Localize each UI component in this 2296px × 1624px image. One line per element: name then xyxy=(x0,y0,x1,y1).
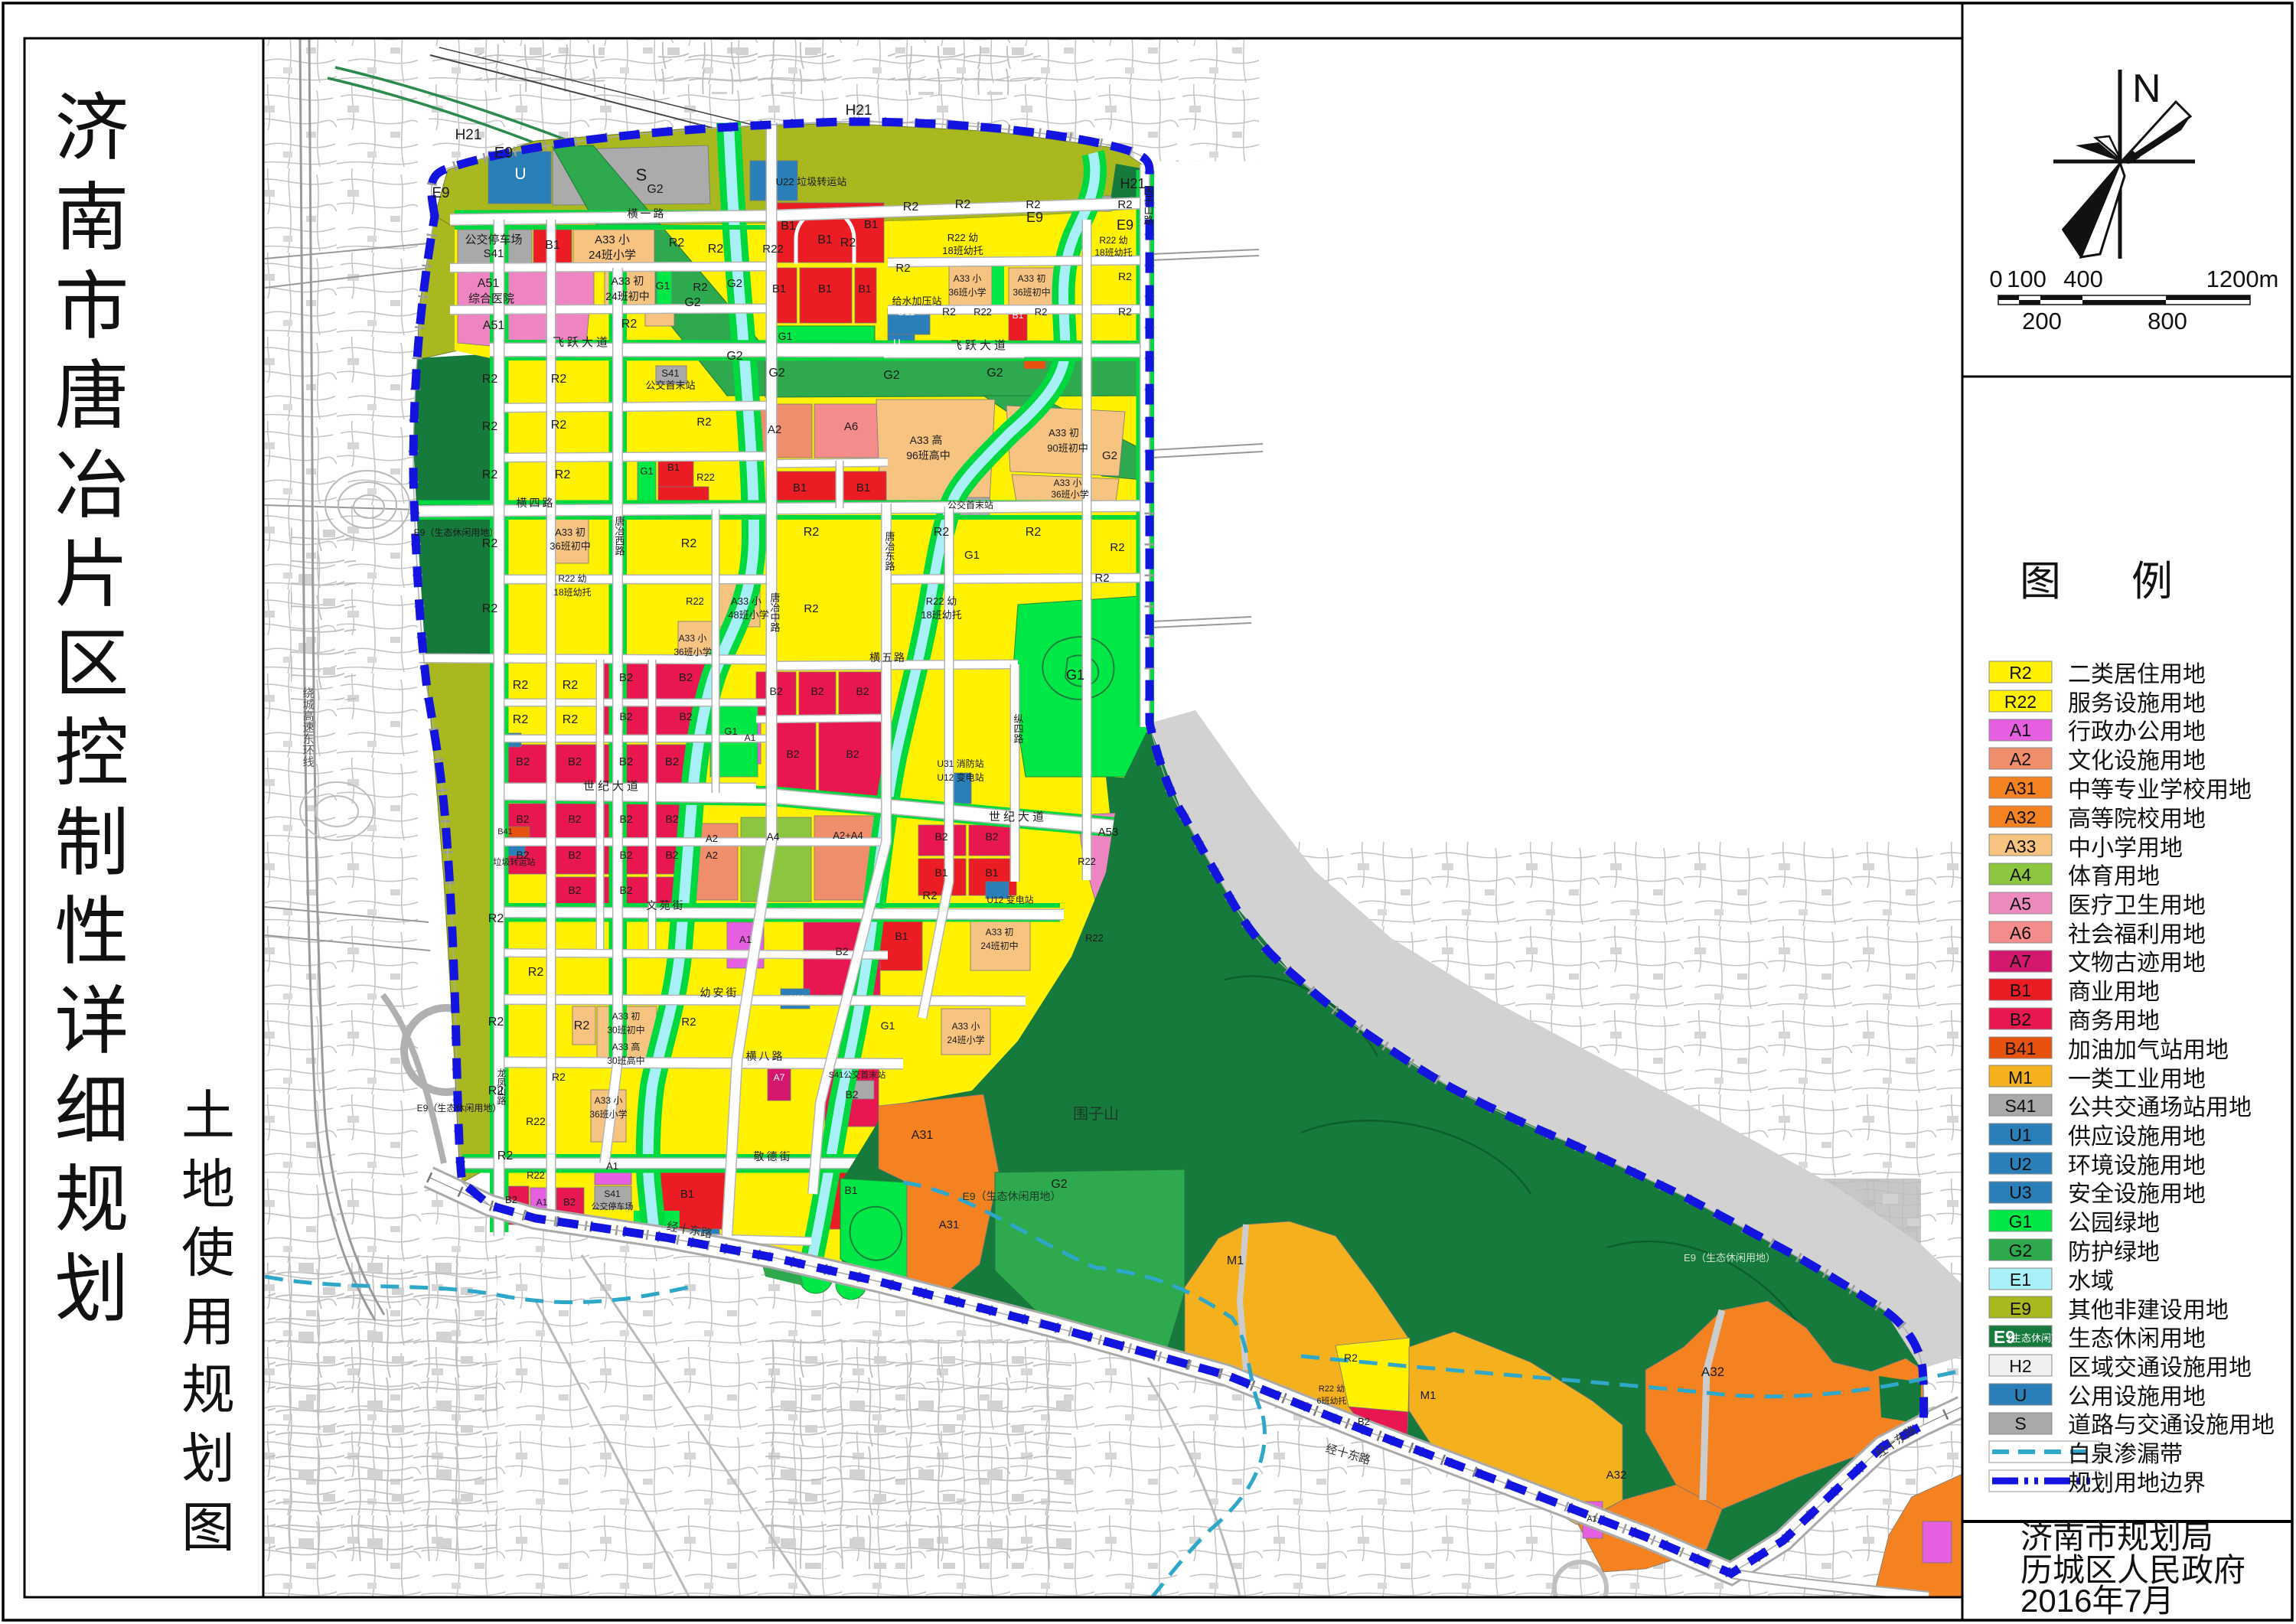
svg-text:36班小学: 36班小学 xyxy=(589,1108,627,1120)
svg-text:E9: E9 xyxy=(494,145,513,161)
svg-text:S41: S41 xyxy=(484,247,504,260)
svg-text:幼安街: 幼安街 xyxy=(700,986,739,999)
svg-text:B1: B1 xyxy=(772,282,786,295)
svg-text:R2: R2 xyxy=(934,526,950,539)
svg-text:规: 规 xyxy=(55,1158,129,1241)
svg-text:A33 小: A33 小 xyxy=(952,1021,980,1032)
svg-text:图: 图 xyxy=(2020,559,2061,605)
svg-text:B2: B2 xyxy=(679,671,693,684)
svg-text:S: S xyxy=(2014,1414,2026,1433)
svg-text:给水加压站: 给水加压站 xyxy=(892,295,941,307)
svg-text:R2: R2 xyxy=(1026,198,1040,211)
svg-text:区域交通设施用地: 区域交通设施用地 xyxy=(2068,1355,2252,1381)
svg-text:R2: R2 xyxy=(563,713,579,726)
svg-text:公园绿地: 公园绿地 xyxy=(2068,1211,2160,1236)
svg-text:R2: R2 xyxy=(482,602,498,615)
svg-text:G2: G2 xyxy=(684,296,700,309)
svg-text:800: 800 xyxy=(2148,308,2187,334)
svg-text:A5: A5 xyxy=(2010,894,2031,914)
svg-text:B1: B1 xyxy=(818,282,832,295)
svg-text:绕城高速东环线: 绕城高速东环线 xyxy=(302,687,315,768)
svg-text:龙凤山路: 龙凤山路 xyxy=(496,1068,507,1106)
svg-text:R2: R2 xyxy=(551,419,567,432)
svg-text:世纪大道: 世纪大道 xyxy=(989,810,1047,823)
svg-text:公交首末站: 公交首末站 xyxy=(645,380,695,391)
svg-text:R22: R22 xyxy=(974,306,992,318)
svg-text:18班幼托: 18班幼托 xyxy=(553,587,591,598)
svg-text:36班小学: 36班小学 xyxy=(1051,488,1088,500)
svg-text:E9（生态休闲用地）: E9（生态休闲用地） xyxy=(1684,1252,1776,1264)
svg-text:G2: G2 xyxy=(726,350,742,363)
svg-text:敬德街: 敬德街 xyxy=(754,1150,793,1163)
svg-text:S41公交首末站: S41公交首末站 xyxy=(829,1069,886,1080)
svg-text:飞跃大道: 飞跃大道 xyxy=(951,339,1009,352)
svg-text:R2: R2 xyxy=(488,912,504,925)
svg-text:围子山: 围子山 xyxy=(1073,1105,1119,1123)
svg-text:文物古迹用地: 文物古迹用地 xyxy=(2068,951,2206,976)
svg-text:G2: G2 xyxy=(883,369,899,382)
svg-text:B1: B1 xyxy=(934,866,947,879)
svg-text:文苑街: 文苑街 xyxy=(647,899,686,911)
svg-text:G2: G2 xyxy=(768,367,784,380)
svg-text:S41: S41 xyxy=(604,1189,621,1199)
svg-text:36班小学: 36班小学 xyxy=(948,286,986,298)
svg-text:用: 用 xyxy=(181,1292,235,1352)
svg-text:G1: G1 xyxy=(964,549,980,562)
svg-text:防护绿地: 防护绿地 xyxy=(2068,1240,2160,1265)
svg-text:B2: B2 xyxy=(619,710,632,722)
svg-text:E9: E9 xyxy=(432,185,449,201)
svg-text:A31: A31 xyxy=(912,1129,934,1142)
svg-text:A53: A53 xyxy=(1098,826,1119,839)
svg-text:B1: B1 xyxy=(781,220,796,233)
svg-text:A33 初: A33 初 xyxy=(1018,273,1046,284)
svg-text:A2+A4: A2+A4 xyxy=(833,830,863,841)
svg-text:B2: B2 xyxy=(619,884,632,896)
svg-text:400: 400 xyxy=(2063,266,2103,292)
svg-text:唐: 唐 xyxy=(55,354,129,438)
svg-text:U11: U11 xyxy=(790,994,804,1003)
svg-text:36班初中: 36班初中 xyxy=(1013,286,1050,298)
svg-text:市: 市 xyxy=(55,265,129,348)
svg-text:南: 南 xyxy=(55,176,129,259)
svg-text:B2: B2 xyxy=(505,1194,517,1205)
svg-text:R2: R2 xyxy=(1118,305,1132,318)
svg-text:B2: B2 xyxy=(619,755,633,768)
svg-text:G1: G1 xyxy=(778,330,793,342)
svg-text:A51: A51 xyxy=(478,277,500,290)
svg-text:R2: R2 xyxy=(563,679,579,692)
svg-text:E9（生态休闲用地）: E9（生态休闲用地） xyxy=(962,1190,1061,1202)
svg-text:横四路: 横四路 xyxy=(517,497,556,509)
svg-text:R2: R2 xyxy=(1117,198,1132,211)
svg-text:A6: A6 xyxy=(844,420,858,433)
svg-text:唐冶东路: 唐冶东路 xyxy=(884,530,895,571)
svg-text:G1: G1 xyxy=(881,1019,895,1032)
svg-text:A33 初: A33 初 xyxy=(612,275,644,287)
svg-text:G2: G2 xyxy=(647,183,663,196)
svg-text:100: 100 xyxy=(2007,266,2047,292)
svg-text:A1: A1 xyxy=(606,1160,618,1172)
svg-text:R2: R2 xyxy=(482,468,498,481)
svg-text:6班幼托: 6班幼托 xyxy=(1316,1395,1346,1406)
svg-text:B2: B2 xyxy=(2010,1009,2031,1029)
svg-text:R22: R22 xyxy=(696,471,715,483)
svg-text:U: U xyxy=(2014,1385,2027,1405)
svg-text:B1: B1 xyxy=(545,239,560,252)
svg-text:R22: R22 xyxy=(527,1169,545,1181)
svg-text:A2: A2 xyxy=(706,850,718,861)
svg-text:中等专业学校用地: 中等专业学校用地 xyxy=(2068,778,2252,803)
svg-text:R2: R2 xyxy=(482,373,498,386)
svg-text:R2: R2 xyxy=(696,416,711,429)
svg-text:B2: B2 xyxy=(810,685,823,697)
svg-text:横八路: 横八路 xyxy=(746,1050,785,1062)
svg-text:G1: G1 xyxy=(724,726,737,737)
svg-text:B1: B1 xyxy=(667,461,680,473)
svg-text:B1: B1 xyxy=(817,233,833,246)
svg-text:A32: A32 xyxy=(2005,807,2037,827)
svg-text:E9: E9 xyxy=(2010,1299,2031,1319)
svg-text:A33 小: A33 小 xyxy=(595,233,630,246)
svg-text:商务用地: 商务用地 xyxy=(2068,1009,2160,1034)
svg-text:24班初中: 24班初中 xyxy=(605,290,650,302)
svg-text:B2: B2 xyxy=(985,830,998,843)
svg-text:B2: B2 xyxy=(619,671,633,684)
svg-text:G1: G1 xyxy=(1066,667,1084,683)
svg-text:B2: B2 xyxy=(934,830,947,843)
svg-text:B2: B2 xyxy=(769,685,782,697)
svg-text:R2: R2 xyxy=(488,1016,504,1029)
svg-text:A1: A1 xyxy=(536,1197,548,1208)
svg-text:(生态休闲): (生态休闲) xyxy=(2008,1332,2055,1344)
svg-text:R2: R2 xyxy=(903,201,919,214)
svg-text:B2: B2 xyxy=(846,748,859,760)
svg-text:R2: R2 xyxy=(804,602,818,615)
svg-text:生态休闲用地: 生态休闲用地 xyxy=(2068,1326,2206,1352)
svg-text:B2: B2 xyxy=(845,1088,858,1101)
svg-text:规: 规 xyxy=(181,1360,235,1420)
svg-text:A2: A2 xyxy=(706,833,718,844)
svg-text:G2: G2 xyxy=(1102,449,1117,462)
svg-text:中小学用地: 中小学用地 xyxy=(2068,836,2183,861)
svg-text:一类工业用地: 一类工业用地 xyxy=(2068,1067,2206,1092)
svg-text:U12 变电站: U12 变电站 xyxy=(937,771,983,783)
svg-text:R2: R2 xyxy=(2009,663,2031,683)
svg-text:综合医院: 综合医院 xyxy=(468,292,514,305)
svg-text:图: 图 xyxy=(181,1498,235,1557)
svg-text:安全设施用地: 安全设施用地 xyxy=(2068,1182,2206,1207)
svg-text:高等院校用地: 高等院校用地 xyxy=(2068,807,2206,832)
svg-text:R2: R2 xyxy=(942,305,956,318)
svg-text:A7: A7 xyxy=(774,1072,785,1083)
svg-text:济: 济 xyxy=(55,86,129,170)
svg-text:医疗卫生用地: 医疗卫生用地 xyxy=(2068,893,2206,918)
svg-text:A33 小: A33 小 xyxy=(679,633,707,644)
svg-text:A33 初: A33 初 xyxy=(555,527,585,538)
svg-text:A4: A4 xyxy=(2010,865,2031,885)
svg-text:B1: B1 xyxy=(680,1188,694,1201)
svg-text:B2: B2 xyxy=(563,1196,576,1208)
svg-text:R2: R2 xyxy=(840,236,856,249)
svg-text:划: 划 xyxy=(181,1429,235,1489)
svg-text:济南市规划局: 济南市规划局 xyxy=(2020,1519,2213,1555)
svg-text:A33 高: A33 高 xyxy=(612,1041,641,1052)
svg-text:围子山路: 围子山路 xyxy=(1143,185,1154,225)
svg-text:R22: R22 xyxy=(2004,692,2037,712)
svg-text:公交停车场: 公交停车场 xyxy=(592,1201,634,1211)
svg-text:A33 高: A33 高 xyxy=(910,434,943,446)
svg-text:1200m: 1200m xyxy=(2206,266,2279,292)
svg-text:性: 性 xyxy=(55,890,129,973)
svg-text:B1: B1 xyxy=(2010,980,2031,1000)
svg-text:R22: R22 xyxy=(1085,932,1104,944)
svg-text:公交停车场: 公交停车场 xyxy=(465,233,522,246)
svg-text:地: 地 xyxy=(181,1155,235,1215)
svg-text:U31 消防站: U31 消防站 xyxy=(937,758,983,769)
svg-text:B2: B2 xyxy=(568,884,581,896)
svg-text:R22 幼: R22 幼 xyxy=(1319,1384,1345,1394)
svg-text:商业用地: 商业用地 xyxy=(2068,980,2160,1005)
svg-text:U22 垃圾转运站: U22 垃圾转运站 xyxy=(776,176,846,188)
svg-text:A33 初: A33 初 xyxy=(1049,427,1079,439)
svg-text:R2: R2 xyxy=(1110,541,1124,554)
svg-text:96班高中: 96班高中 xyxy=(906,449,951,461)
svg-text:R2: R2 xyxy=(804,526,820,539)
svg-text:R2: R2 xyxy=(1035,306,1048,318)
svg-text:B1: B1 xyxy=(793,481,807,494)
svg-text:R22: R22 xyxy=(762,243,784,256)
svg-text:A33 小: A33 小 xyxy=(595,1095,623,1106)
svg-text:纵四路: 纵四路 xyxy=(1013,714,1024,744)
svg-text:A2: A2 xyxy=(2010,749,2031,769)
svg-text:B1: B1 xyxy=(895,930,908,942)
svg-text:R2: R2 xyxy=(1026,526,1042,539)
svg-text:A1: A1 xyxy=(739,934,752,945)
svg-text:冶: 冶 xyxy=(55,444,129,527)
svg-text:G1: G1 xyxy=(640,465,653,477)
svg-text:R2: R2 xyxy=(555,468,571,481)
svg-text:R2: R2 xyxy=(1344,1352,1358,1364)
svg-text:36班初中: 36班初中 xyxy=(550,540,590,552)
svg-text:B2: B2 xyxy=(665,813,678,825)
svg-text:A33 小: A33 小 xyxy=(954,273,982,284)
svg-text:详: 详 xyxy=(55,980,129,1063)
svg-text:B2: B2 xyxy=(679,710,692,722)
svg-text:G2: G2 xyxy=(987,367,1003,380)
svg-text:横一路: 横一路 xyxy=(628,207,667,220)
svg-text:A33: A33 xyxy=(2005,836,2037,856)
svg-text:制: 制 xyxy=(55,801,129,885)
svg-text:公用设施用地: 公用设施用地 xyxy=(2068,1384,2206,1410)
svg-text:B41: B41 xyxy=(2005,1039,2037,1058)
svg-text:水域: 水域 xyxy=(2068,1269,2114,1294)
svg-text:30班初中: 30班初中 xyxy=(607,1024,644,1035)
svg-text:A1: A1 xyxy=(1587,1515,1596,1524)
svg-text:A2: A2 xyxy=(768,423,781,436)
svg-text:其他非建设用地: 其他非建设用地 xyxy=(2068,1298,2229,1323)
svg-text:白泉渗漏带: 白泉渗漏带 xyxy=(2068,1442,2183,1467)
svg-text:R22 幼: R22 幼 xyxy=(947,232,978,243)
svg-text:控: 控 xyxy=(55,712,129,795)
svg-text:世纪大道: 世纪大道 xyxy=(583,780,641,793)
svg-text:R2: R2 xyxy=(1094,572,1109,585)
svg-text:R2: R2 xyxy=(922,889,937,902)
svg-text:R2: R2 xyxy=(681,537,697,550)
svg-text:飞跃大道: 飞跃大道 xyxy=(553,336,611,349)
svg-text:S41: S41 xyxy=(661,367,679,379)
svg-text:A32: A32 xyxy=(1701,1365,1724,1379)
svg-text:B41: B41 xyxy=(497,827,513,836)
svg-text:区: 区 xyxy=(55,622,129,706)
svg-text:B1: B1 xyxy=(856,481,870,494)
svg-text:U2: U2 xyxy=(2009,1154,2031,1174)
svg-text:R2: R2 xyxy=(693,281,707,294)
svg-text:R22: R22 xyxy=(526,1115,546,1127)
svg-text:R2: R2 xyxy=(551,373,567,386)
svg-text:片: 片 xyxy=(55,533,129,616)
svg-text:文化设施用地: 文化设施用地 xyxy=(2068,748,2206,774)
svg-text:M1: M1 xyxy=(1420,1389,1437,1402)
svg-text:R2: R2 xyxy=(528,966,544,979)
svg-text:M1: M1 xyxy=(2008,1068,2033,1088)
svg-text:G1: G1 xyxy=(2009,1211,2033,1231)
svg-text:R22 幼: R22 幼 xyxy=(1099,235,1127,246)
svg-text:体育用地: 体育用地 xyxy=(2068,864,2160,889)
svg-text:U: U xyxy=(893,337,900,348)
svg-text:B2: B2 xyxy=(835,945,848,957)
svg-text:R2: R2 xyxy=(482,420,498,433)
svg-text:R2: R2 xyxy=(513,713,529,726)
svg-text:R22: R22 xyxy=(686,595,704,607)
svg-text:B2: B2 xyxy=(568,813,581,825)
svg-text:A33 初: A33 初 xyxy=(986,927,1014,938)
svg-text:横五路: 横五路 xyxy=(869,651,906,664)
svg-text:R2: R2 xyxy=(552,1071,566,1083)
svg-text:B1: B1 xyxy=(844,1184,857,1196)
svg-text:R22: R22 xyxy=(1078,856,1096,867)
svg-text:例: 例 xyxy=(2131,559,2173,605)
svg-text:B2: B2 xyxy=(786,748,799,760)
svg-text:M1: M1 xyxy=(1227,1254,1244,1267)
svg-text:U11: U11 xyxy=(898,306,915,318)
svg-text:R2: R2 xyxy=(895,262,910,275)
svg-text:社会福利用地: 社会福利用地 xyxy=(2068,922,2206,947)
svg-text:A7: A7 xyxy=(2010,951,2031,971)
svg-text:24班初中: 24班初中 xyxy=(980,940,1018,951)
svg-text:B2: B2 xyxy=(665,849,678,861)
svg-text:道路与交通设施用地: 道路与交通设施用地 xyxy=(2068,1413,2275,1438)
svg-text:24班小学: 24班小学 xyxy=(589,249,636,262)
svg-text:S: S xyxy=(636,165,647,184)
svg-text:U: U xyxy=(514,165,526,183)
svg-text:U1: U1 xyxy=(2009,1125,2031,1145)
svg-text:24班小学: 24班小学 xyxy=(947,1034,984,1045)
svg-text:使: 使 xyxy=(181,1223,235,1283)
svg-text:200: 200 xyxy=(2022,308,2062,334)
svg-text:E9（生态休闲用地）: E9（生态休闲用地） xyxy=(414,527,499,538)
svg-text:18班幼托: 18班幼托 xyxy=(921,609,961,621)
svg-text:A32: A32 xyxy=(1606,1469,1627,1482)
svg-text:E9（生态休闲用地）: E9（生态休闲用地） xyxy=(417,1103,502,1114)
svg-text:G2: G2 xyxy=(1051,1178,1067,1191)
svg-text:90班初中: 90班初中 xyxy=(1047,442,1088,454)
svg-text:G1: G1 xyxy=(656,279,670,292)
svg-text:H2: H2 xyxy=(2009,1356,2031,1376)
svg-text:B2: B2 xyxy=(568,849,581,861)
svg-text:R2: R2 xyxy=(621,318,638,331)
svg-text:B2: B2 xyxy=(516,755,530,768)
svg-text:垃圾转运站: 垃圾转运站 xyxy=(494,856,536,867)
svg-text:R2: R2 xyxy=(497,1150,514,1163)
svg-text:B1: B1 xyxy=(864,218,878,231)
svg-text:A31: A31 xyxy=(939,1218,960,1231)
svg-text:A31: A31 xyxy=(2005,778,2037,798)
svg-text:公共交通场站用地: 公共交通场站用地 xyxy=(2068,1095,2252,1120)
svg-text:土: 土 xyxy=(181,1086,235,1146)
svg-text:公交首末站: 公交首末站 xyxy=(947,499,993,510)
svg-text:N: N xyxy=(2132,67,2161,111)
svg-text:行政办公用地: 行政办公用地 xyxy=(2068,719,2206,745)
svg-text:二类居住用地: 二类居住用地 xyxy=(2068,662,2206,687)
svg-text:B1: B1 xyxy=(858,282,871,295)
svg-text:A51: A51 xyxy=(483,319,505,332)
svg-text:E9: E9 xyxy=(1117,217,1133,233)
svg-text:B1: B1 xyxy=(985,866,998,879)
svg-text:R22 幼: R22 幼 xyxy=(926,595,957,607)
svg-text:30班高中: 30班高中 xyxy=(607,1055,644,1066)
svg-text:B2: B2 xyxy=(516,813,529,825)
svg-text:A6: A6 xyxy=(2010,923,2031,943)
svg-text:R2: R2 xyxy=(482,537,498,550)
svg-text:A4: A4 xyxy=(766,830,779,843)
svg-text:B1: B1 xyxy=(1013,310,1024,321)
svg-text:加油加气站用地: 加油加气站用地 xyxy=(2068,1038,2229,1063)
svg-text:U12 变电站: U12 变电站 xyxy=(987,894,1033,905)
svg-text:R22 幼: R22 幼 xyxy=(558,573,586,584)
svg-text:A33 初: A33 初 xyxy=(612,1011,641,1022)
svg-text:B2: B2 xyxy=(619,813,632,825)
svg-text:G2: G2 xyxy=(727,277,742,290)
svg-text:供应设施用地: 供应设施用地 xyxy=(2068,1124,2206,1150)
svg-text:B2: B2 xyxy=(665,755,679,768)
svg-text:服务设施用地: 服务设施用地 xyxy=(2068,691,2206,716)
svg-text:18班幼托: 18班幼托 xyxy=(1094,247,1132,258)
svg-text:H21: H21 xyxy=(455,127,482,143)
svg-text:2016年7月: 2016年7月 xyxy=(2020,1583,2174,1619)
svg-text:E1: E1 xyxy=(2010,1270,2031,1290)
svg-text:B2: B2 xyxy=(619,849,632,861)
svg-text:细: 细 xyxy=(55,1069,129,1153)
svg-text:S41: S41 xyxy=(2005,1096,2037,1116)
svg-text:E9: E9 xyxy=(1026,210,1043,225)
svg-text:B2: B2 xyxy=(856,685,869,697)
svg-text:唐冶西路: 唐冶西路 xyxy=(614,515,625,556)
svg-text:R2: R2 xyxy=(574,1019,590,1032)
svg-text:18班幼托: 18班幼托 xyxy=(942,245,983,256)
svg-text:R2: R2 xyxy=(708,243,724,256)
svg-text:48班小学: 48班小学 xyxy=(728,609,768,621)
svg-text:R2: R2 xyxy=(681,1016,696,1029)
svg-text:R2: R2 xyxy=(669,236,685,249)
svg-text:规划用地边界: 规划用地边界 xyxy=(2068,1471,2206,1496)
svg-text:环境设施用地: 环境设施用地 xyxy=(2068,1153,2206,1179)
svg-text:A1: A1 xyxy=(745,732,756,743)
svg-text:A33 小: A33 小 xyxy=(731,595,762,607)
svg-text:36班小学: 36班小学 xyxy=(673,646,711,657)
svg-text:U3: U3 xyxy=(2009,1182,2031,1202)
svg-text:R2: R2 xyxy=(1118,270,1132,282)
